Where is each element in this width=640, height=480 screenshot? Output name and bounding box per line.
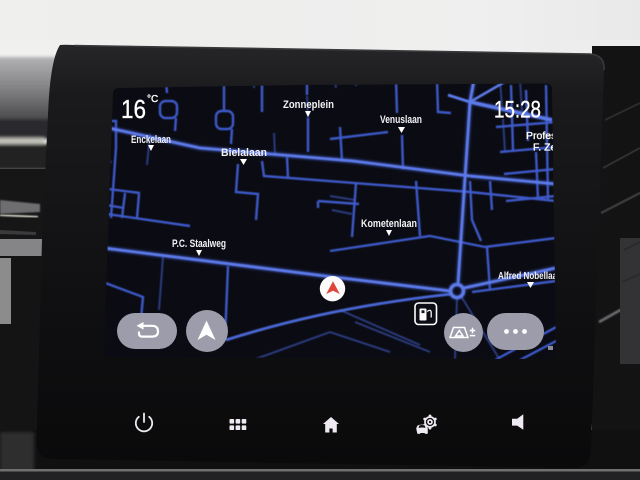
svg-text:Zonneplein: Zonneplein: [283, 99, 334, 111]
svg-text:15:28: 15:28: [494, 97, 541, 124]
svg-text:Kometenlaan: Kometenlaan: [361, 218, 417, 230]
svg-text:Venuslaan: Venuslaan: [380, 114, 422, 126]
svg-text:Bielalaan: Bielalaan: [221, 147, 267, 159]
svg-text:P.C. Staalweg: P.C. Staalweg: [172, 238, 226, 250]
svg-text:16: 16: [121, 94, 146, 124]
svg-text:°C: °C: [147, 94, 158, 105]
svg-text:Alfred Nobellaan: Alfred Nobellaan: [498, 271, 562, 282]
svg-text:Enckelaan: Enckelaan: [131, 134, 171, 146]
svg-text:Profes: Profes: [526, 130, 556, 142]
